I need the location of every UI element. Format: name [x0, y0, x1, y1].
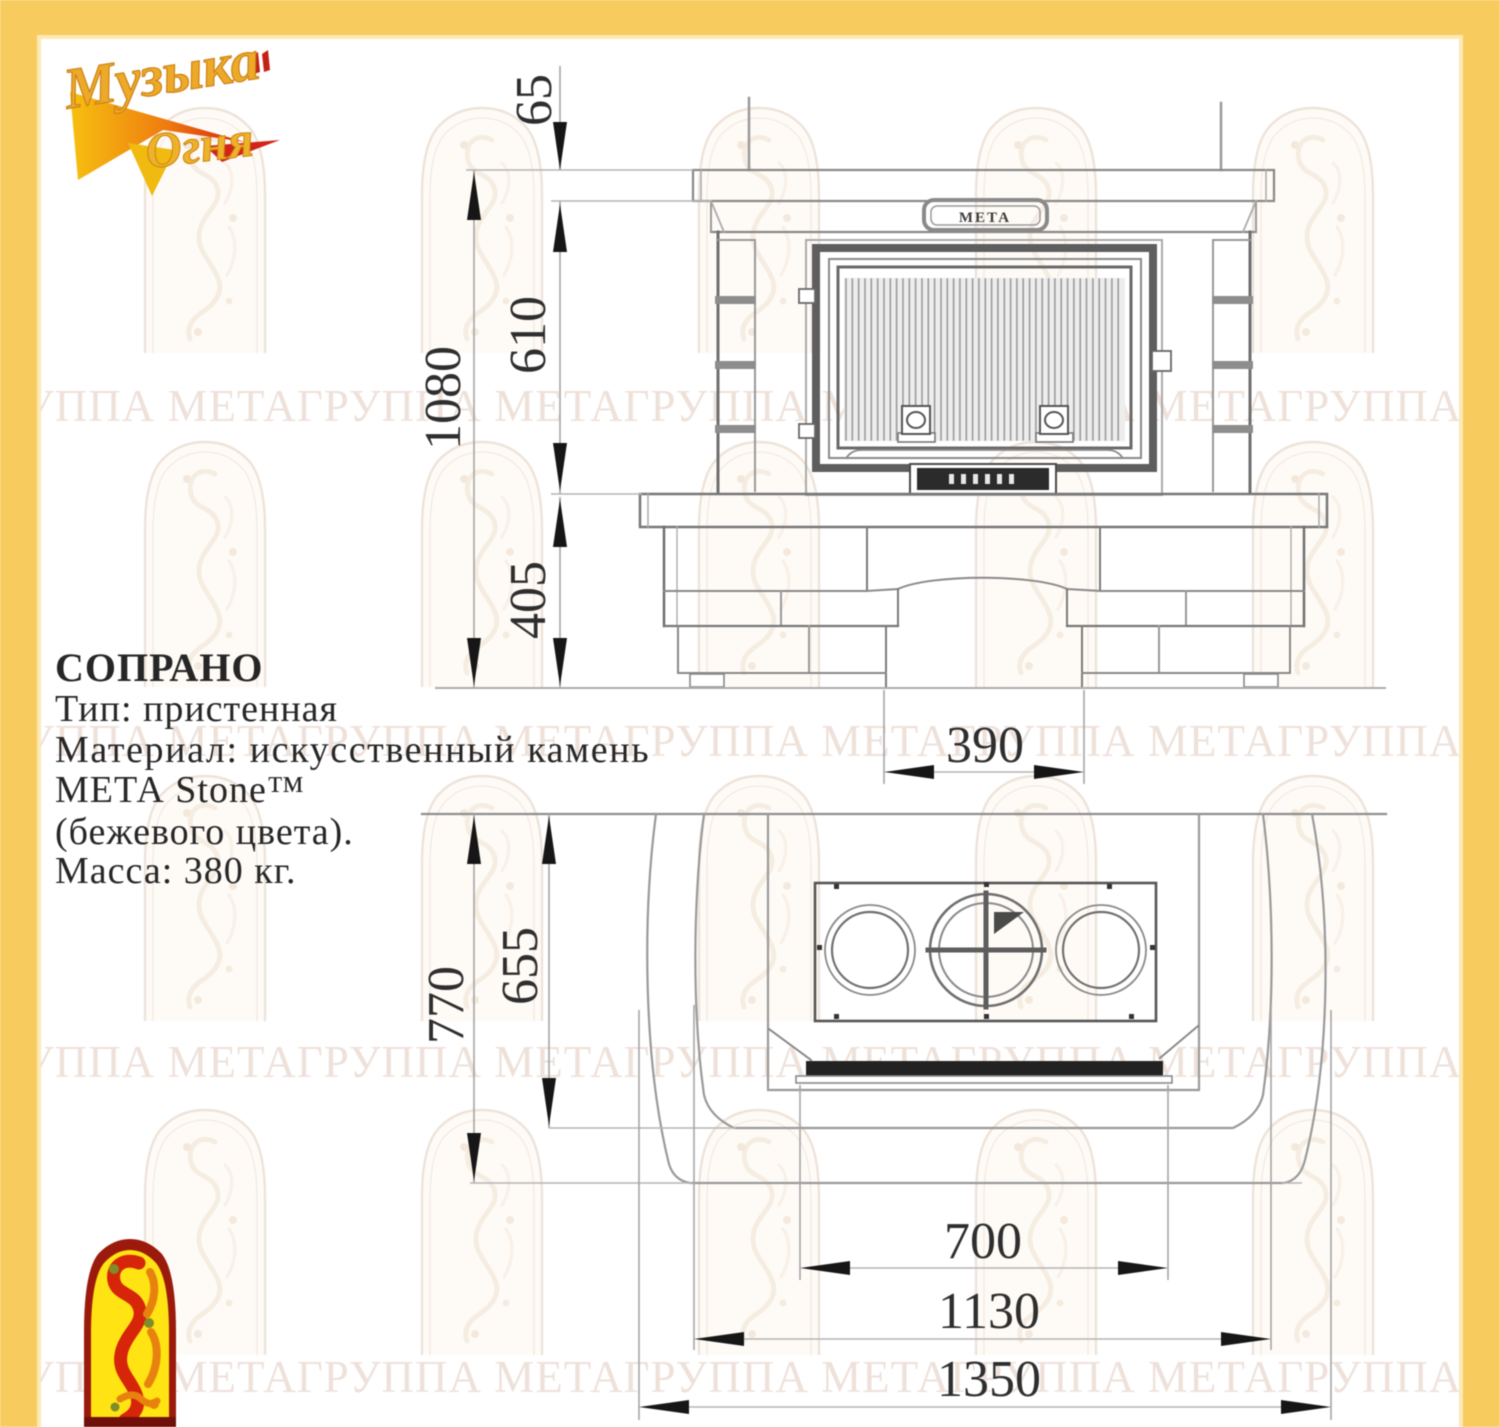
svg-text:1350: 1350 — [937, 1351, 1041, 1408]
svg-text:1130: 1130 — [938, 1283, 1040, 1340]
svg-text:Масса: 380 кг.: Масса: 380 кг. — [55, 850, 297, 892]
svg-text:700: 700 — [944, 1213, 1022, 1270]
svg-text:МЕТА Stone™: МЕТА Stone™ — [55, 769, 305, 811]
svg-text:610: 610 — [500, 296, 557, 374]
svg-text:1080: 1080 — [415, 346, 472, 450]
svg-text:405: 405 — [500, 561, 557, 639]
svg-text:655: 655 — [492, 927, 549, 1005]
svg-text:65: 65 — [506, 74, 563, 126]
svg-text:Материал: искусственный камень: Материал: искусственный камень — [55, 729, 650, 771]
svg-text:Тип: пристенная: Тип: пристенная — [55, 688, 338, 730]
svg-text:СОПРАНО: СОПРАНО — [55, 645, 264, 690]
svg-text:ГРУППА МЕТАГРУППА МЕТАГРУППА М: ГРУППА МЕТАГРУППА МЕТАГРУППА МЕТАГРУППА … — [0, 1352, 1500, 1402]
svg-text:МЕТА: МЕТА — [959, 210, 1011, 226]
svg-text:(бежевого цвета).: (бежевого цвета). — [55, 811, 354, 853]
svg-text:ГРУППА МЕТАГРУППА МЕТАГРУППА М: ГРУППА МЕТАГРУППА МЕТАГРУППА МЕТАГРУППА … — [0, 381, 1500, 431]
svg-text:770: 770 — [418, 966, 475, 1044]
svg-text:ГРУППА МЕТАГРУППА МЕТАГРУППА М: ГРУППА МЕТАГРУППА МЕТАГРУППА МЕТАГРУППА … — [0, 1037, 1500, 1087]
svg-text:390: 390 — [946, 717, 1024, 774]
